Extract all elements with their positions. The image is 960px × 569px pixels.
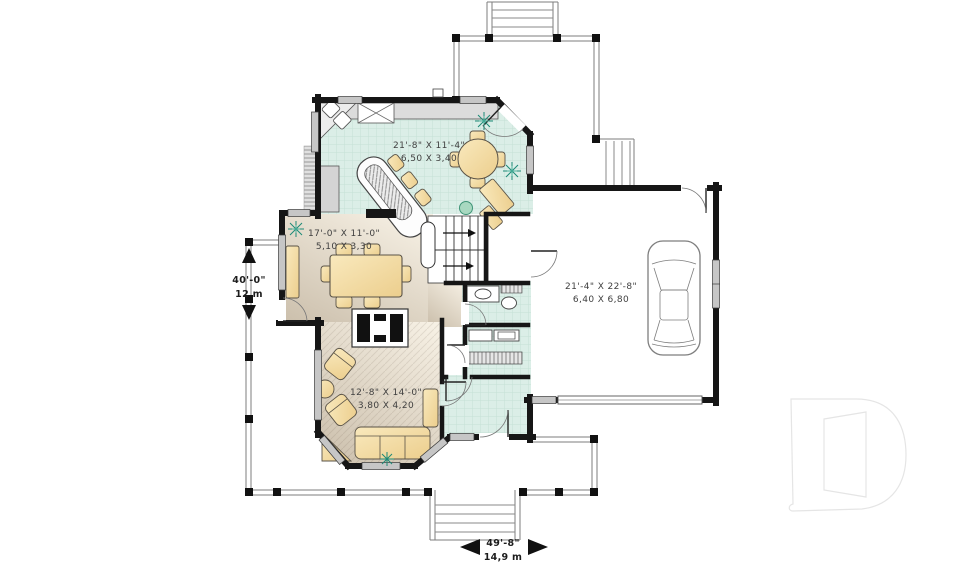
living-label-imperial: 12'-8" X 14'-0"	[350, 388, 422, 398]
height-metric: 12 m	[235, 289, 263, 300]
deck-steps	[487, 2, 558, 36]
sink	[475, 289, 491, 299]
potted-plant	[460, 202, 473, 215]
kitchen-label-imperial: 21'-8" X 11'-4"	[393, 141, 465, 151]
refrigerator	[319, 166, 339, 212]
mudroom-door	[447, 345, 469, 367]
car	[648, 241, 700, 355]
dimension-horizontal: 49'-8" 14,9 m	[460, 538, 548, 563]
toilet	[502, 297, 517, 309]
fireplace	[352, 309, 408, 347]
width-imperial: 49'-8"	[486, 538, 519, 549]
house-garage-door	[526, 249, 557, 278]
front-steps	[430, 490, 520, 540]
garage-service-door	[681, 184, 707, 213]
watermark-d-logo	[789, 399, 906, 511]
wall-stub	[366, 209, 396, 218]
height-imperial: 40'-0"	[232, 275, 265, 286]
plant	[380, 452, 394, 466]
buffet	[286, 246, 299, 298]
dining-label-metric: 5,10 X 3,30	[316, 242, 372, 252]
dining-table	[330, 255, 402, 297]
arrow-down-icon	[242, 305, 256, 320]
kitchen-label-metric: 6,50 X 3,40	[401, 154, 457, 164]
garage-label-metric: 6,40 X 6,80	[573, 295, 629, 305]
dimension-vertical: 40'-0" 12 m	[232, 248, 265, 320]
living-label-metric: 3,80 X 4,20	[358, 401, 414, 411]
width-metric: 14,9 m	[484, 552, 522, 563]
floor-plan-canvas: 21'-8" X 11'-4" 6,50 X 3,40 17'-0" X 11'…	[0, 0, 960, 569]
vent	[433, 89, 443, 97]
plant	[288, 221, 304, 237]
shelf	[501, 285, 522, 293]
arrow-left-icon	[460, 539, 480, 555]
dining-label-imperial: 17'-0" X 11'-0"	[308, 229, 380, 239]
garage-label-imperial: 21'-4" X 22'-8"	[565, 282, 637, 292]
arrow-up-icon	[242, 248, 256, 263]
console-chair	[423, 389, 438, 427]
deck-side-steps	[599, 139, 634, 186]
floor-plan-drawing: 21'-8" X 11'-4" 6,50 X 3,40 17'-0" X 11'…	[0, 0, 960, 569]
arrow-right-icon	[528, 539, 548, 555]
staircase	[421, 216, 488, 283]
closet-rod	[468, 352, 522, 364]
sofa	[355, 427, 430, 459]
